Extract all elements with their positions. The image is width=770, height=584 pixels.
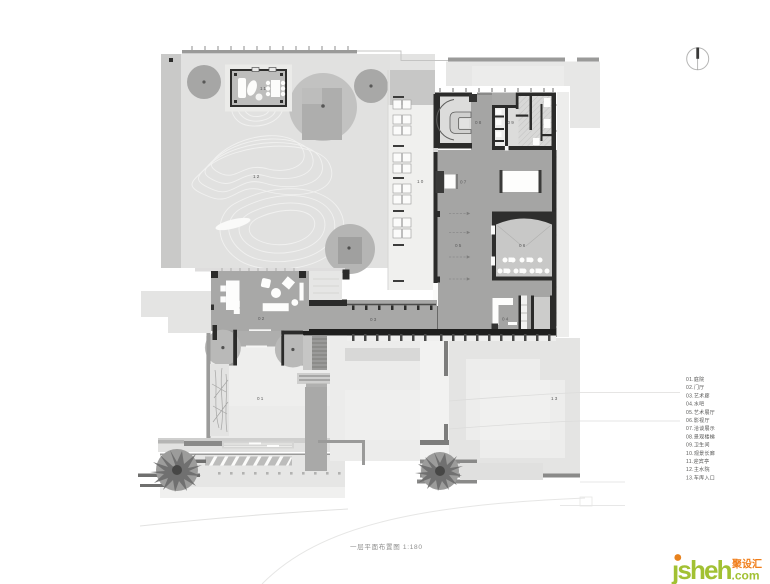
svg-text:07.洽谈展示: 07.洽谈展示 [686,425,715,432]
svg-text:02.门厅: 02.门厅 [686,384,704,391]
svg-text:12.主水院: 12.主水院 [686,466,710,473]
svg-text:04.水吧: 04.水吧 [686,401,704,408]
svg-text:08.景观楼梯: 08.景观楼梯 [686,433,715,440]
svg-text:09: 09 [508,120,516,125]
svg-text:10: 10 [417,179,425,184]
svg-text:05.艺术展厅: 05.艺术展厅 [686,409,715,416]
svg-text:03.艺术廊: 03.艺术廊 [686,392,710,399]
svg-text:10.观景长廊: 10.观景长廊 [686,450,715,457]
svg-text:09.卫生间: 09.卫生间 [686,442,710,449]
svg-text:12: 12 [253,174,261,179]
svg-text:06: 06 [519,243,527,248]
svg-text:08: 08 [475,120,483,125]
svg-text:07: 07 [460,180,468,185]
svg-text:01.庭院: 01.庭院 [686,376,704,383]
svg-text:04: 04 [502,317,510,322]
svg-text:13: 13 [551,396,559,401]
svg-text:聚设汇: 聚设汇 [731,558,762,571]
svg-text:01: 01 [257,396,265,401]
svg-text:06.影视厅: 06.影视厅 [686,417,710,424]
svg-text:一层平面布置图 1:180: 一层平面布置图 1:180 [350,542,423,551]
svg-text:05: 05 [455,243,463,248]
svg-text:13.车库入口: 13.车库入口 [686,474,715,481]
svg-text:02: 02 [258,316,266,321]
svg-text:.com: .com [732,569,760,583]
svg-text:11.迎宾亭: 11.迎宾亭 [686,458,709,465]
svg-text:03: 03 [370,317,378,322]
svg-text:11: 11 [260,86,267,91]
